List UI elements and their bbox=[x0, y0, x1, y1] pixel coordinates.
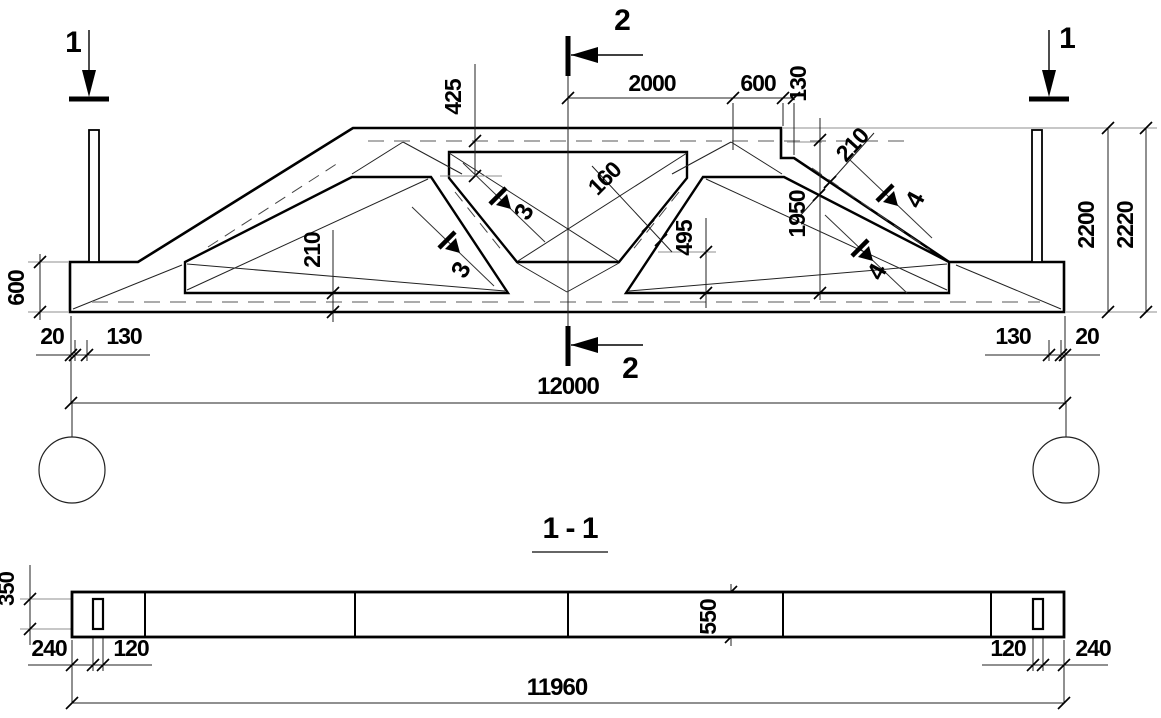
dimension-label: 240 bbox=[31, 635, 67, 661]
dimension-label: 2000 bbox=[628, 70, 675, 96]
dimension-label: 2220 bbox=[1112, 201, 1138, 248]
dowel-hole-left bbox=[93, 599, 103, 629]
section-marker-label: 2 bbox=[614, 4, 630, 37]
dimension-label: 12000 bbox=[537, 373, 599, 400]
grid-bubble-left bbox=[39, 437, 105, 503]
dimension-label: 495 bbox=[671, 219, 697, 256]
dimension-label: 2200 bbox=[1073, 201, 1099, 248]
section-marker-label: 1 bbox=[1059, 22, 1075, 55]
dimension-label: 120 bbox=[990, 635, 1026, 661]
dimension-label: 600 bbox=[740, 70, 776, 96]
drawing-sheet: 1212334442520006001302101950160495210600… bbox=[0, 0, 1161, 718]
section-marker-2-bottom-arrow-icon bbox=[571, 337, 598, 353]
dimension-label: 600 bbox=[3, 270, 29, 306]
dimension-label: 130 bbox=[106, 323, 142, 349]
section-view-title: 1 - 1 bbox=[542, 512, 597, 545]
dimension-label: 350 bbox=[0, 571, 19, 605]
grid-bubble-right bbox=[1033, 437, 1099, 503]
truss-drawing-canvas: 1212334442520006001302101950160495210600… bbox=[0, 0, 1161, 718]
dowel-right bbox=[1032, 130, 1042, 262]
dimension-label: 130 bbox=[995, 323, 1031, 349]
dimension-label: 120 bbox=[113, 635, 149, 661]
dimension-label: 130 bbox=[785, 66, 811, 102]
section-marker-label: 1 bbox=[65, 26, 81, 59]
dimension-label: 20 bbox=[1075, 323, 1099, 349]
section-marker-2-top-arrow-icon bbox=[571, 47, 598, 63]
dimension-label: 1950 bbox=[784, 190, 810, 237]
section-marker-1-right-arrow-icon bbox=[1042, 70, 1056, 97]
section-marker-label: 2 bbox=[622, 352, 638, 385]
section-marker-1-left-arrow-icon bbox=[82, 70, 96, 97]
dowel-hole-right bbox=[1033, 599, 1043, 629]
dimension-label: 210 bbox=[299, 232, 325, 268]
dimension-label: 425 bbox=[440, 78, 466, 115]
cut-marker-label: 4 bbox=[900, 187, 931, 213]
dimension-label: 240 bbox=[1075, 635, 1111, 661]
dimension-label: 20 bbox=[40, 323, 64, 349]
dimension-label: 210 bbox=[831, 123, 874, 167]
dowel-left bbox=[89, 130, 99, 262]
dimension-label: 550 bbox=[695, 599, 721, 635]
dimension-label: 11960 bbox=[527, 674, 588, 701]
